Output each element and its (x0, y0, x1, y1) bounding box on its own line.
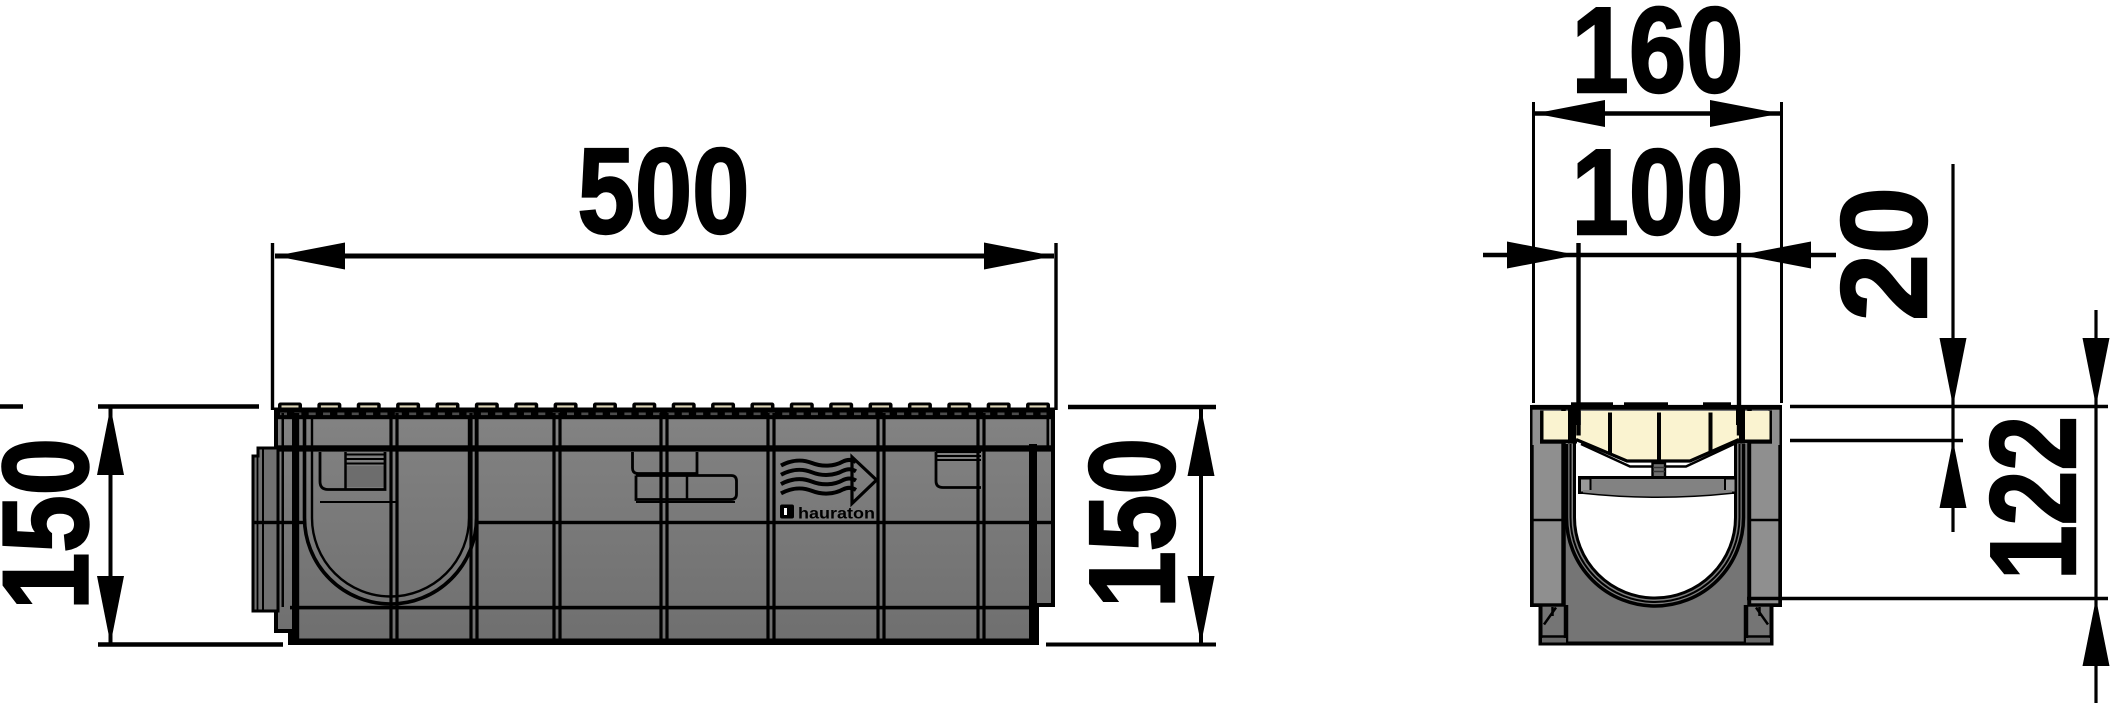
svg-text:160: 160 (1572, 0, 1744, 118)
svg-text:100: 100 (1572, 124, 1744, 260)
svg-text:500: 500 (578, 123, 750, 259)
svg-text:20: 20 (1816, 187, 1952, 321)
svg-text:150: 150 (0, 438, 114, 610)
svg-text:150: 150 (1064, 438, 1200, 608)
svg-text:hauraton: hauraton (798, 506, 875, 523)
svg-text:122: 122 (1965, 416, 2101, 580)
